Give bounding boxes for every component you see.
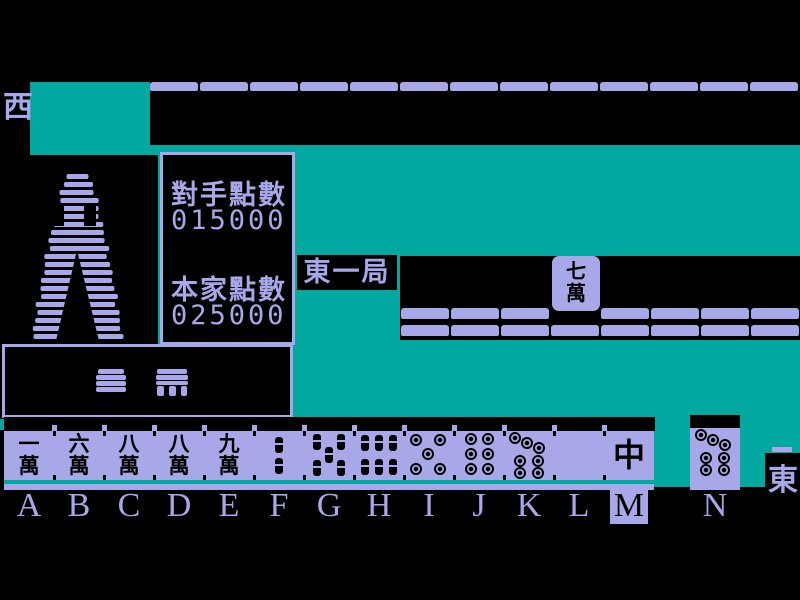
slot-label-c[interactable]: C	[110, 488, 148, 524]
slot-label-h[interactable]: H	[360, 488, 398, 524]
slot-label-a[interactable]: A	[10, 488, 48, 524]
mahjong-game-screen: 西 對手點數 015000 本家點數 025000 東一局	[0, 0, 800, 600]
slot-label-k[interactable]: K	[510, 488, 548, 524]
slot-label-j[interactable]: J	[460, 488, 498, 524]
slot-label-l[interactable]: L	[560, 488, 598, 524]
slot-label-i[interactable]: I	[410, 488, 448, 524]
slot-label-g[interactable]: G	[310, 488, 348, 524]
slot-label-b[interactable]: B	[60, 488, 98, 524]
slot-label-m-selected[interactable]: M	[610, 488, 648, 524]
slot-label-e[interactable]: E	[210, 488, 248, 524]
slot-letter-row: ABCDEFGHIJKLMN	[0, 0, 800, 600]
slot-label-f[interactable]: F	[260, 488, 298, 524]
slot-label-d[interactable]: D	[160, 488, 198, 524]
slot-label-n[interactable]: N	[696, 488, 734, 524]
